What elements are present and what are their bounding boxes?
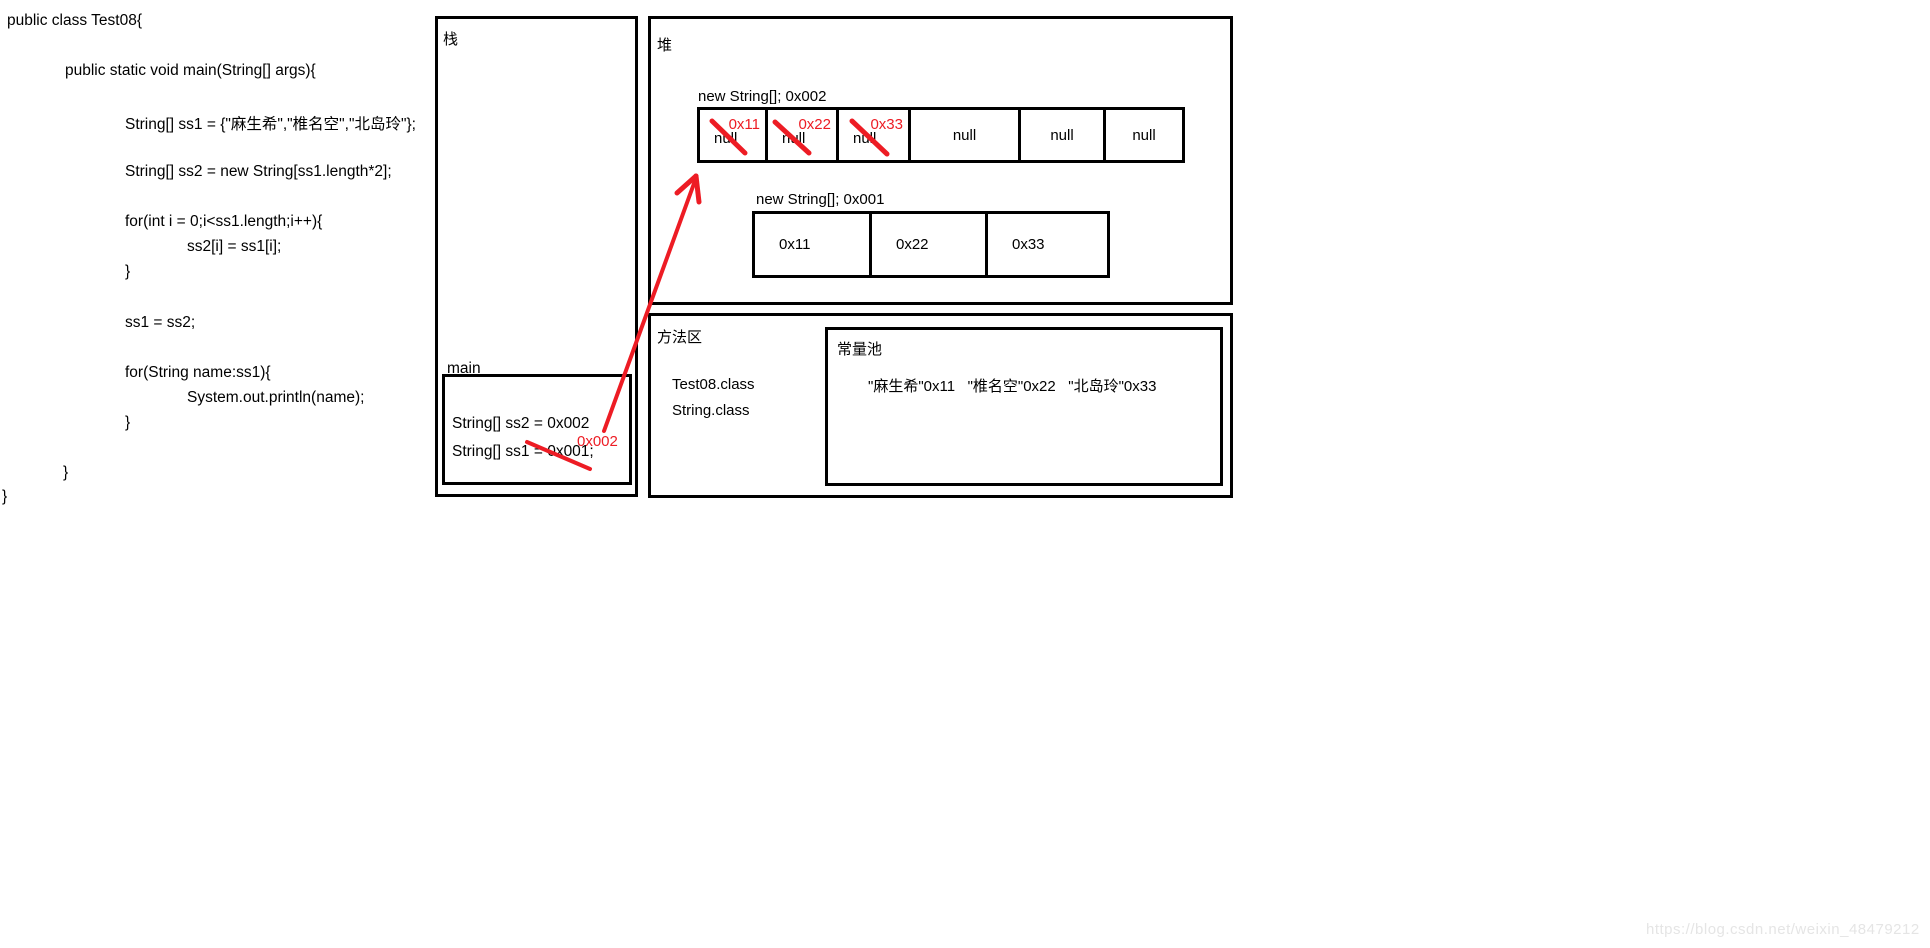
cell-value: null xyxy=(1050,127,1073,144)
heap-box: 堆 new String[]; 0x002 null 0x11 null 0x2… xyxy=(648,16,1233,305)
code-line: } xyxy=(63,464,68,482)
method-area-label: 方法区 xyxy=(657,326,702,347)
class-entry: Test08.class xyxy=(672,376,755,393)
code-line: ss2[i] = ss1[i]; xyxy=(187,238,281,256)
code-line: System.out.println(name); xyxy=(187,389,364,407)
code-line: String[] ss2 = new String[ss1.length*2]; xyxy=(125,163,392,181)
stack-label: 栈 xyxy=(443,28,458,49)
array-0x001: 0x11 0x22 0x33 xyxy=(752,211,1110,278)
watermark-url: https://blog.csdn.net/weixin_48479212 xyxy=(1646,921,1920,938)
array-0x001-title: new String[]; 0x001 xyxy=(756,191,884,208)
cell-value: null xyxy=(953,127,976,144)
code-line: for(int i = 0;i<ss1.length;i++){ xyxy=(125,213,322,231)
code-line: ss1 = ss2; xyxy=(125,314,195,332)
stack-box: 栈 main String[] ss2 = 0x002 String[] ss1… xyxy=(435,16,638,497)
cell-value: 0x11 xyxy=(779,236,810,253)
constant-pool-box: 常量池 "麻生希"0x11 "椎名空"0x22 "北岛玲"0x33 xyxy=(825,327,1223,486)
array-0x002: null 0x11 null 0x22 null 0x33 null null … xyxy=(697,107,1185,163)
red-cell-label: 0x11 xyxy=(729,116,760,133)
method-area-box: 方法区 Test08.class String.class 常量池 "麻生希"0… xyxy=(648,313,1233,498)
array-0x002-title: new String[]; 0x002 xyxy=(698,88,826,105)
array-cell: null xyxy=(1106,110,1182,160)
code-line: String[] ss1 = {"麻生希","椎名空","北岛玲"}; xyxy=(125,112,416,134)
heap-label: 堆 xyxy=(657,34,672,55)
class-entry: String.class xyxy=(672,402,750,419)
code-line: public class Test08{ xyxy=(7,12,142,30)
stack-var-ss1: String[] ss1 = 0x001; xyxy=(452,443,594,461)
stack-var-ss2: String[] ss2 = 0x002 xyxy=(452,415,589,433)
array-cell: null 0x33 xyxy=(839,110,911,160)
red-annotation-0x002: 0x002 xyxy=(577,433,618,450)
code-line: } xyxy=(125,414,130,432)
array-cell: null 0x22 xyxy=(768,110,839,160)
red-cell-label: 0x33 xyxy=(870,116,903,133)
main-frame-box: String[] ss2 = 0x002 String[] ss1 = 0x00… xyxy=(442,374,632,485)
cell-value: 0x33 xyxy=(1012,236,1045,253)
constant-pool-label: 常量池 xyxy=(837,338,882,359)
array-cell: null 0x11 xyxy=(700,110,768,160)
array-cell: null xyxy=(911,110,1021,160)
cell-value: 0x22 xyxy=(896,236,929,253)
code-line: } xyxy=(125,263,130,281)
array-cell: 0x11 xyxy=(755,214,872,275)
array-cell: null xyxy=(1021,110,1106,160)
code-line: public static void main(String[] args){ xyxy=(65,62,316,80)
array-cell: 0x22 xyxy=(872,214,988,275)
memory-diagram-page: public class Test08{ public static void … xyxy=(0,0,1930,948)
code-line: } xyxy=(2,488,7,506)
constant-pool-entries: "麻生希"0x11 "椎名空"0x22 "北岛玲"0x33 xyxy=(868,375,1156,396)
cell-value: null xyxy=(1132,127,1155,144)
code-line: for(String name:ss1){ xyxy=(125,364,271,382)
red-cell-label: 0x22 xyxy=(798,116,831,133)
array-cell: 0x33 xyxy=(988,214,1107,275)
